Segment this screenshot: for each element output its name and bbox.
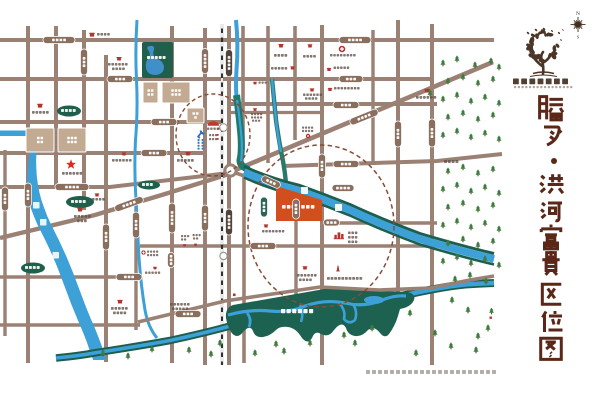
svg-text:N: N (576, 11, 580, 17)
